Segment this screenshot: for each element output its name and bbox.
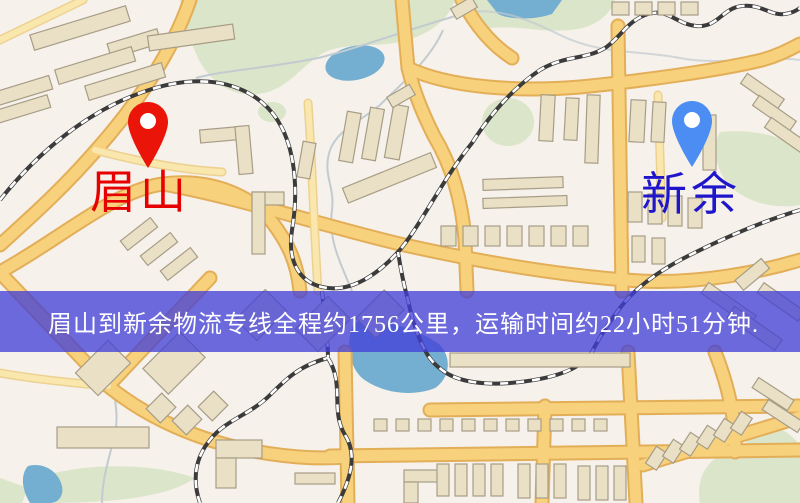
origin-city-label: 眉山 bbox=[90, 170, 190, 216]
destination-pin-shape bbox=[672, 101, 712, 167]
route-info-text: 眉山到新余物流专线全程约1756公里，运输时间约22小时51分钟. bbox=[0, 304, 759, 339]
origin-pin-hole bbox=[140, 113, 156, 129]
map-screenshot: 眉山 新余 眉山到新余物流专线全程约1756公里，运输时间约22小时51分钟. bbox=[0, 0, 800, 503]
map-canvas[interactable] bbox=[0, 0, 800, 503]
origin-pin-icon[interactable] bbox=[128, 102, 168, 168]
destination-pin-icon[interactable] bbox=[672, 101, 712, 167]
destination-city-label: 新余 bbox=[641, 172, 741, 218]
destination-pin-hole bbox=[684, 112, 700, 128]
origin-pin-shape bbox=[128, 102, 168, 168]
route-info-banner: 眉山到新余物流专线全程约1756公里，运输时间约22小时51分钟. bbox=[0, 291, 800, 352]
